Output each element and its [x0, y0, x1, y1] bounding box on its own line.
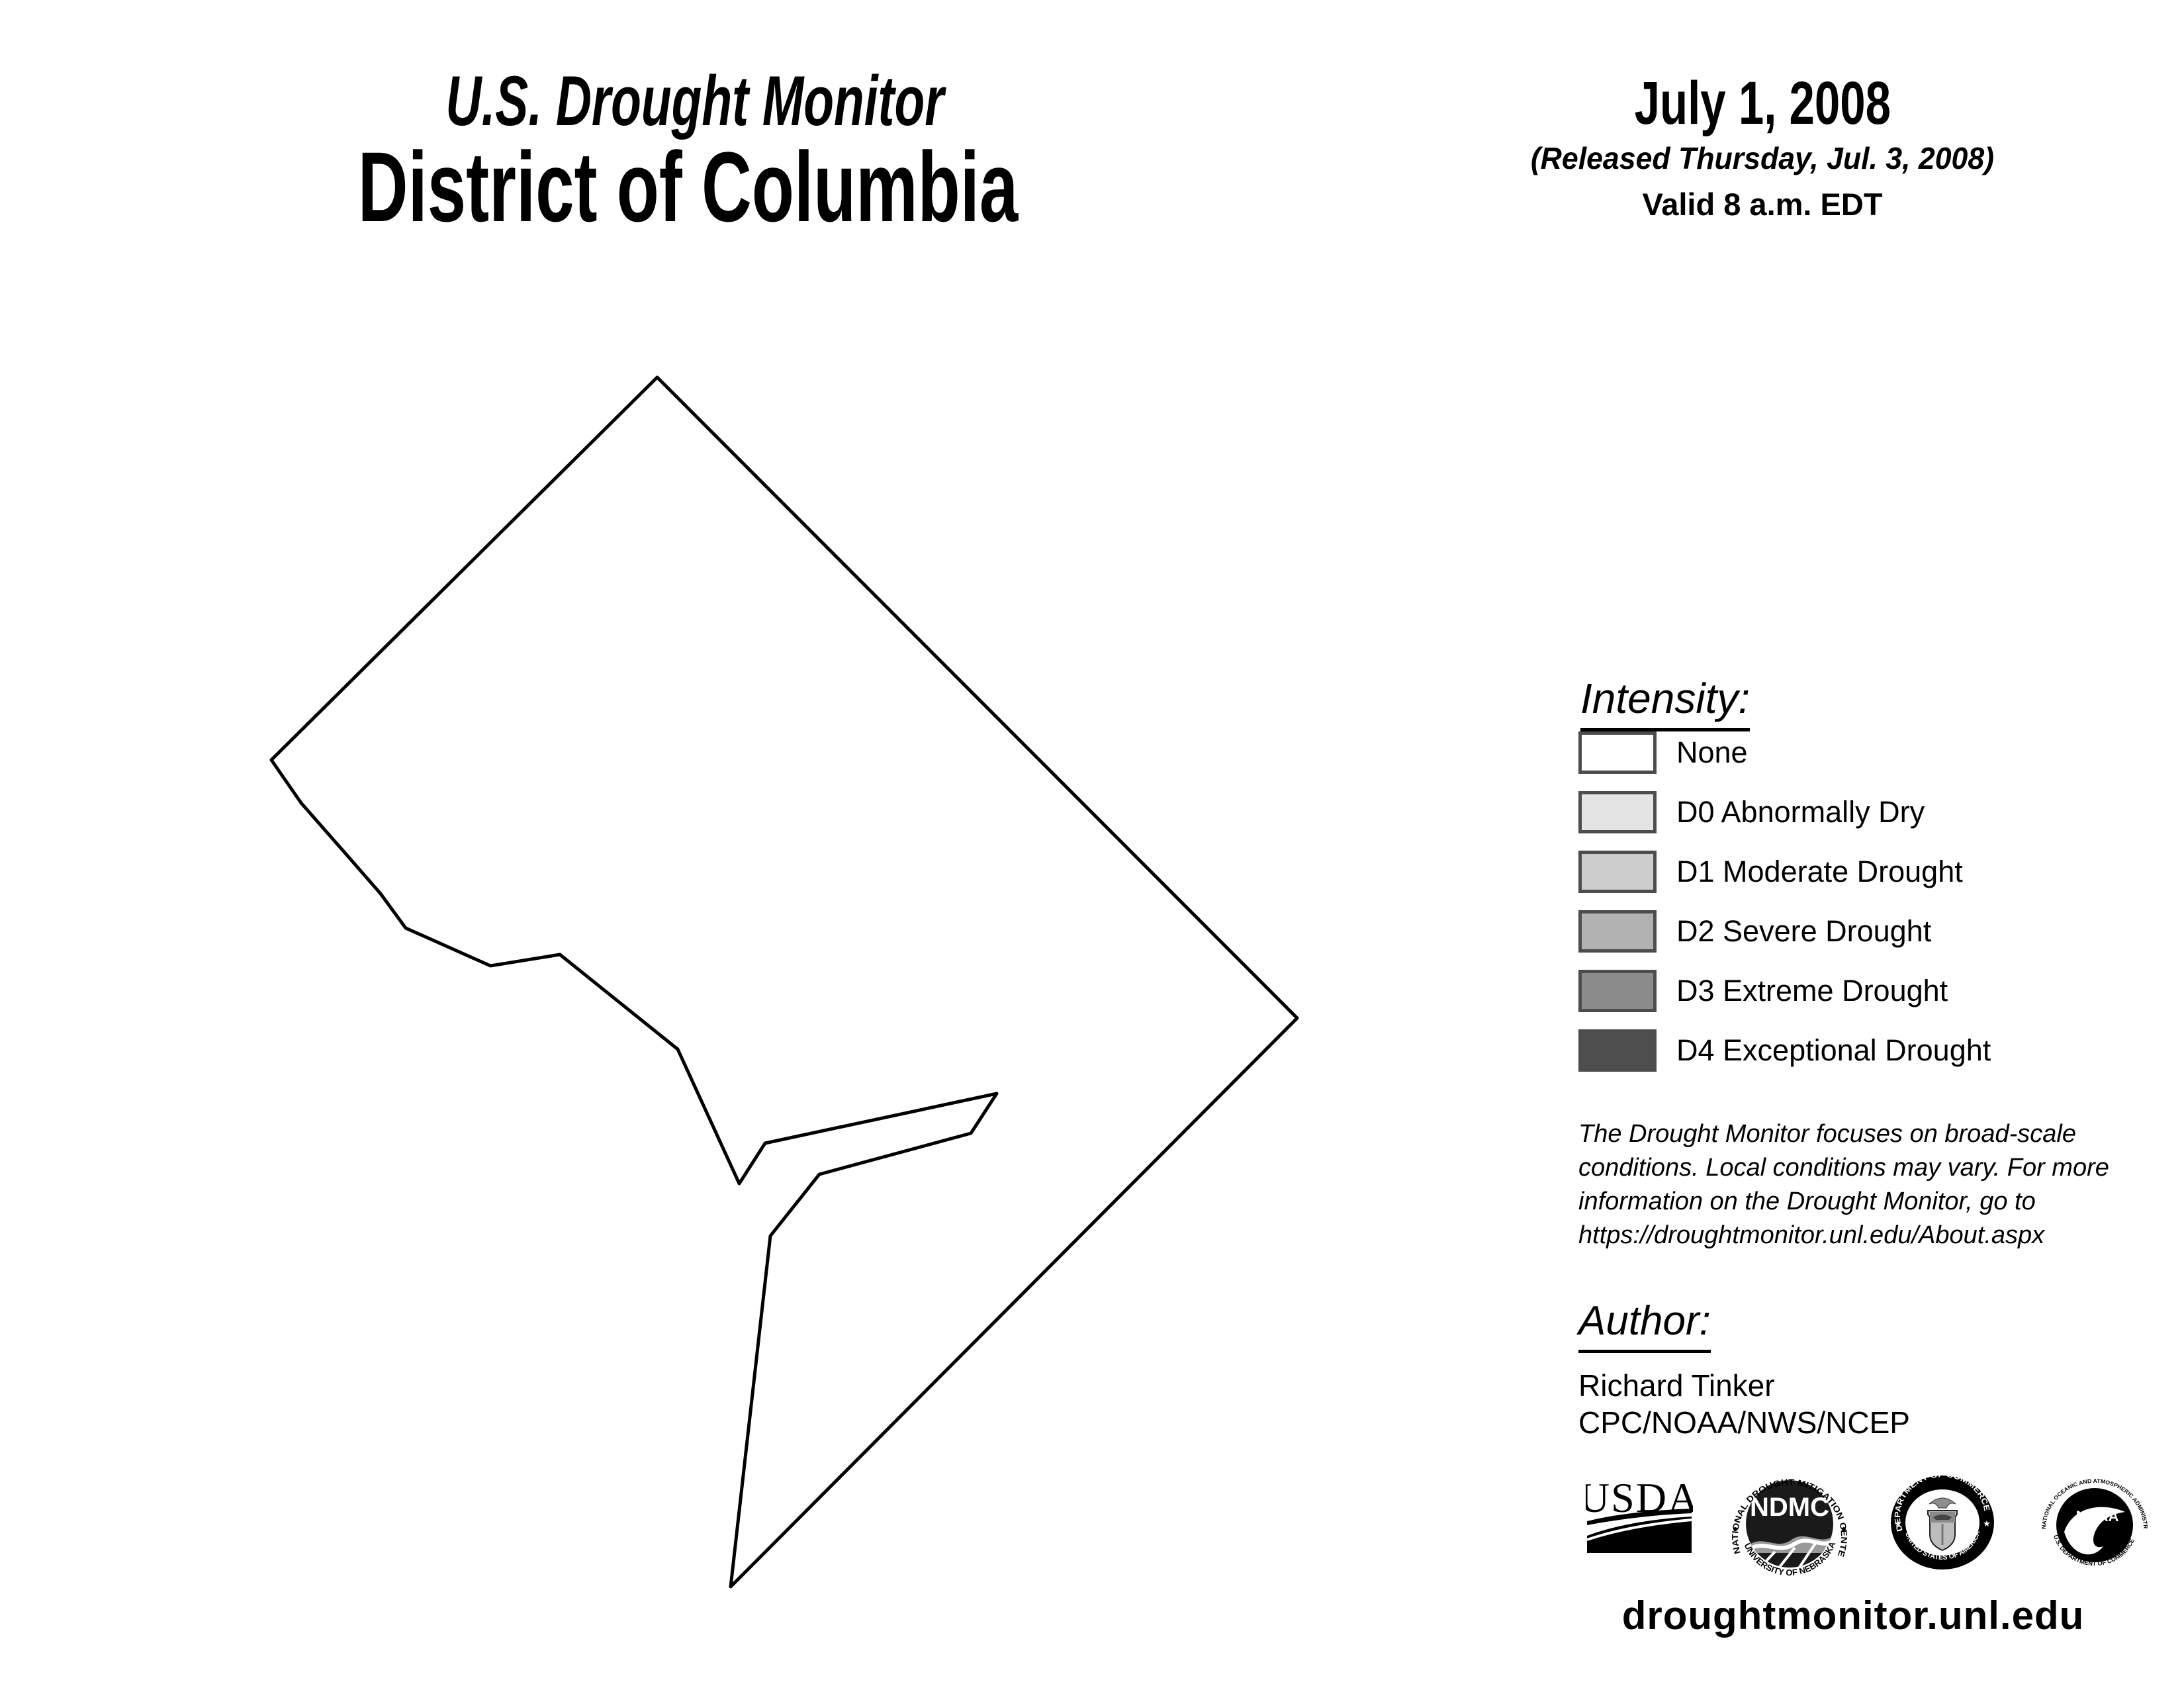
drought-monitor-page: { "header": { "program_title": "U.S. Dro…: [0, 0, 2184, 1688]
legend-swatch-d3: [1578, 970, 1657, 1012]
disclaimer-text: The Drought Monitor focuses on broad-sca…: [1578, 1117, 2174, 1252]
doc-right-star-icon: ★: [1983, 1519, 1991, 1528]
legend-swatch-d1: [1578, 851, 1657, 893]
ndmc-logo: NDMC NATIONAL DROUGHT MITIGATION CENTER …: [1729, 1474, 1850, 1579]
legend-item-d3: D3 Extreme Drought: [1578, 970, 2108, 1012]
author-heading-text: Author:: [1578, 1297, 1711, 1353]
page-title: District of Columbia: [93, 130, 1284, 244]
legend-label: D3 Extreme Drought: [1676, 974, 1948, 1008]
disclaimer-line: The Drought Monitor focuses on broad-sca…: [1578, 1117, 2174, 1151]
disclaimer-line: https://droughtmonitor.unl.edu/About.asp…: [1578, 1219, 2174, 1252]
ndmc-right-dot: [1842, 1527, 1846, 1531]
dc-boundary-outline: [271, 377, 1297, 1587]
legend-swatch-none: [1578, 731, 1657, 774]
legend-heading: Intensity:: [1580, 674, 1750, 731]
legend-swatch-d2: [1578, 910, 1657, 953]
legend-item-none: None: [1578, 731, 2108, 774]
valid-time: Valid 8 a.m. EDT: [1465, 186, 2060, 222]
legend-label: D1 Moderate Drought: [1676, 855, 1963, 889]
ndmc-left-dot: [1733, 1527, 1737, 1531]
legend-item-d4: D4 Exceptional Drought: [1578, 1029, 2108, 1072]
author-heading: Author:: [1578, 1297, 1711, 1353]
legend-label: D2 Severe Drought: [1676, 914, 1931, 949]
department-of-commerce-seal: DEPARTMENT OF COMMERCE UNITED STATES OF …: [1889, 1474, 1995, 1571]
legend-heading-text: Intensity:: [1580, 674, 1750, 731]
legend-item-d1: D1 Moderate Drought: [1578, 851, 2108, 893]
release-date-text: (Released Thursday, Jul. 3, 2008): [1531, 140, 1994, 176]
legend-swatch-d4: [1578, 1029, 1657, 1072]
disclaimer-line: conditions. Local conditions may vary. F…: [1578, 1151, 2174, 1185]
doc-left-star-icon: ★: [1894, 1519, 1902, 1528]
noaa-logo-text: NOAA: [2076, 1508, 2119, 1524]
noaa-logo: NOAA NATIONAL OCEANIC AND ATMOSPHERIC AD…: [2042, 1474, 2148, 1574]
page-title-text: District of Columbia: [358, 130, 1019, 244]
legend-label: D0 Abnormally Dry: [1676, 795, 1925, 829]
map-date-text: July 1, 2008: [1634, 69, 1890, 138]
author-affiliation: CPC/NOAA/NWS/NCEP: [1578, 1405, 1910, 1440]
usda-logo: USDA: [1586, 1479, 1693, 1555]
release-date: (Released Thursday, Jul. 3, 2008): [1465, 140, 2060, 176]
legend-item-d2: D2 Severe Drought: [1578, 910, 2108, 953]
site-url: droughtmonitor.unl.edu: [1522, 1593, 2184, 1638]
legend-swatch-d0: [1578, 791, 1657, 833]
author-name: Richard Tinker: [1578, 1368, 1775, 1403]
legend-label: D4 Exceptional Drought: [1676, 1033, 1991, 1068]
ndmc-logo-text: NDMC: [1750, 1493, 1829, 1522]
map-date: July 1, 2008: [1465, 69, 2060, 138]
legend-label: None: [1676, 735, 1748, 770]
valid-time-text: Valid 8 a.m. EDT: [1642, 187, 1882, 222]
legend-item-d0: D0 Abnormally Dry: [1578, 791, 2108, 833]
disclaimer-line: information on the Drought Monitor, go t…: [1578, 1185, 2174, 1219]
